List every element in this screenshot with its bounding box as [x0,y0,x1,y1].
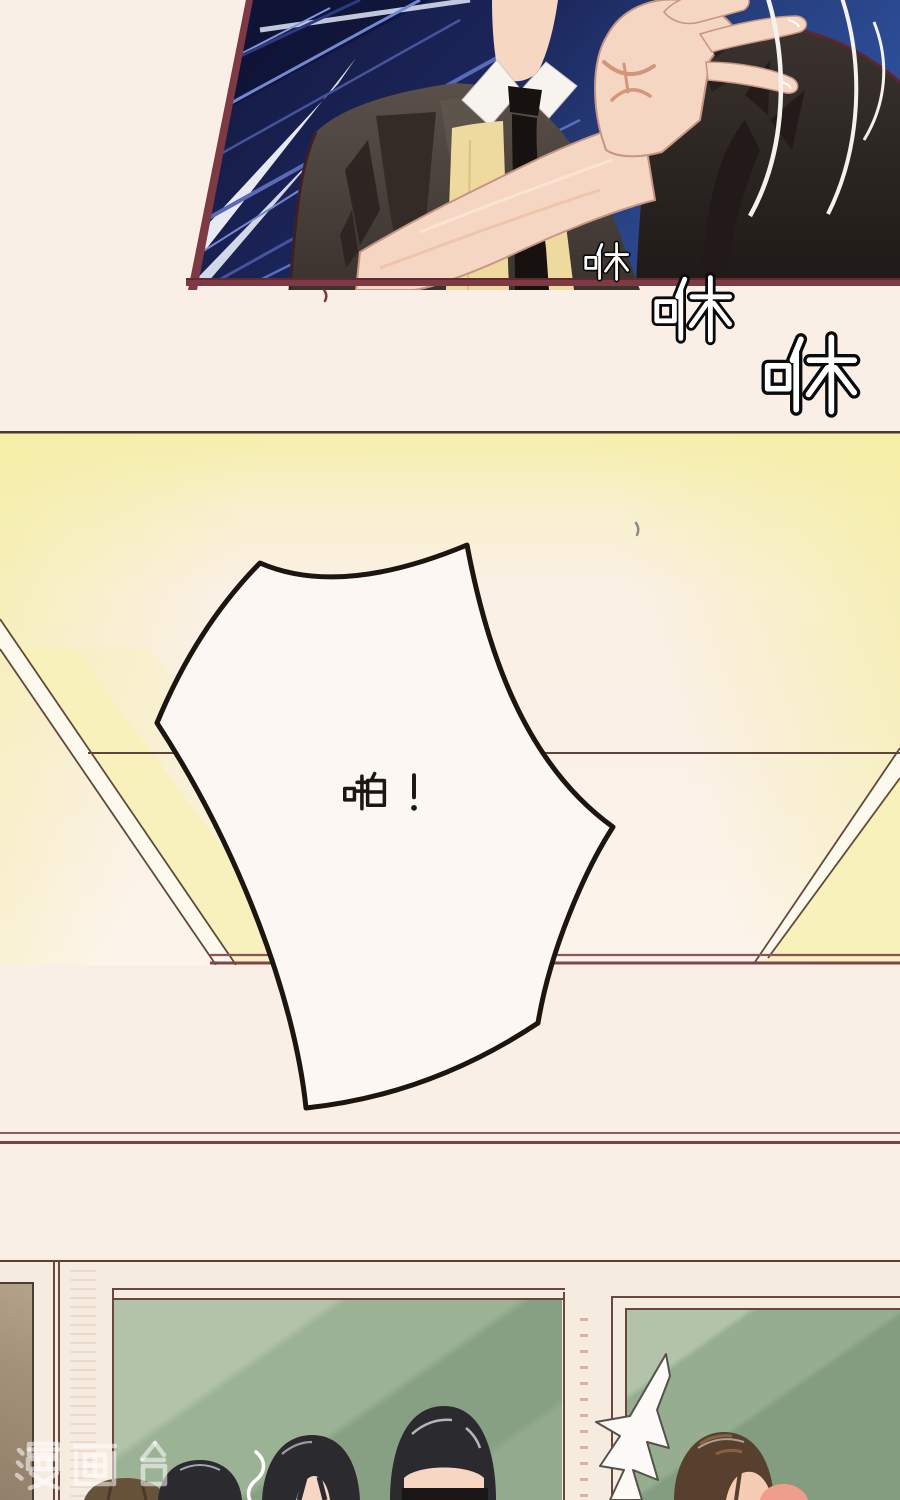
ink-speck-1 [318,288,334,304]
bubble-outline [157,545,613,1108]
sfx-swish-3 [768,337,854,411]
student-head-black-2 [262,1435,360,1500]
comic-page: 咻 咻 咻 啪！ 漫画台 [0,0,900,1500]
tie [508,86,542,116]
divider-line-thick [0,1141,900,1144]
sfx-swish-2 [657,278,730,340]
student-head-black-1 [158,1460,242,1500]
divider-line-thin [0,1132,900,1134]
sfx-swish-1 [586,244,628,280]
sunglasses-band [402,1488,488,1500]
student-head-black-3 [390,1406,496,1500]
shock-burst [596,1354,670,1500]
sfx-swish-group [540,200,900,440]
panel-bottom-classroom [0,1258,900,1500]
steam-squiggle [249,1452,264,1500]
student-head-olive [84,1478,168,1500]
panel-top-border [0,431,900,434]
watermark-manhuatai [17,1443,165,1488]
impact-bubble [130,520,650,1140]
student-head-brown [674,1432,774,1500]
classroom-figures [0,1258,900,1500]
